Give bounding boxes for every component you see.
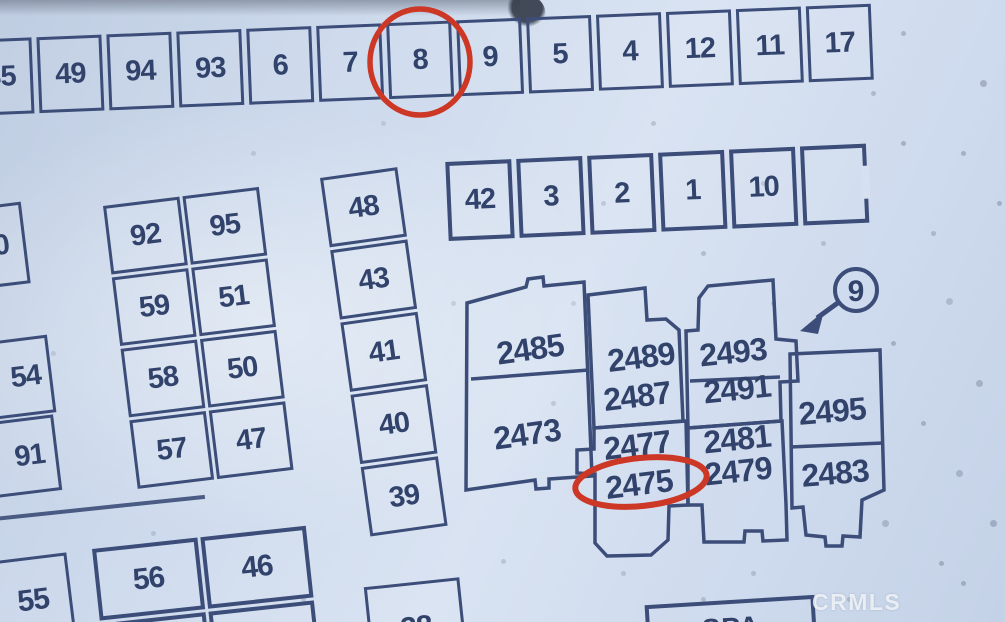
parking-space-48: 48 [320, 167, 407, 247]
paper-speckles [0, 0, 3, 3]
arrow-icon [817, 302, 839, 318]
top-parking-row: 35 49 94 93 6 7 8 9 5 4 12 11 17 [0, 4, 874, 116]
second-parking-row: 42 3 2 1 10 [445, 144, 869, 241]
parking-space-51: 51 [191, 258, 276, 336]
parking-space-empty [800, 144, 869, 226]
left-parking-grid: 92 95 59 51 58 50 57 47 [103, 187, 294, 489]
parking-space-41: 41 [340, 312, 427, 392]
unit-2487-label: 2487 [601, 374, 672, 418]
parking-space-17: 17 [806, 4, 874, 83]
direction-marker: 9 [800, 269, 877, 334]
parking-space-58: 58 [121, 340, 206, 418]
parking-space-2: 2 [587, 153, 656, 235]
parking-space-55: 55 [0, 552, 77, 622]
parking-space-49: 49 [36, 35, 104, 114]
parking-space-59: 59 [112, 268, 197, 346]
parking-space-93: 93 [176, 29, 244, 108]
unit-2491-label: 2491 [702, 368, 773, 411]
parking-space-43: 43 [330, 239, 417, 319]
building-2485-2473-outline [466, 277, 592, 490]
parking-space-95: 95 [182, 187, 267, 265]
unit-2483-label: 2483 [800, 452, 870, 494]
unit-2473-label: 2473 [491, 411, 563, 456]
parking-space-94: 94 [106, 32, 174, 111]
parking-space-56: 56 [92, 538, 205, 621]
parking-space-57: 57 [129, 411, 214, 489]
unit-2479-label: 2479 [703, 450, 774, 493]
building-2485-2473-divider [471, 370, 589, 379]
unit-2477-label: 2477 [601, 423, 672, 467]
parking-space-35: 35 [0, 37, 34, 116]
parking-space-47: 47 [209, 401, 294, 479]
unit-2485-label: 2485 [494, 326, 566, 371]
parking-space-46: 46 [200, 526, 313, 609]
building-2495-2483-divider [790, 443, 883, 447]
arrow-head-icon [800, 311, 824, 334]
building-2493-2491-outline [686, 280, 798, 428]
spa-label: SPA [701, 610, 762, 622]
parking-space-4: 4 [596, 12, 664, 91]
bottom-parking-grid: 56 46 [92, 526, 320, 622]
spa-box: SPA [645, 595, 818, 622]
parking-space-39: 39 [361, 456, 448, 536]
unit-2489-label: 2489 [605, 335, 676, 379]
parking-space-10: 10 [729, 147, 798, 229]
border-gap [861, 166, 870, 199]
stray-line [0, 495, 205, 521]
parking-space-11: 11 [736, 7, 804, 86]
crmls-watermark: CRMLS [812, 589, 901, 616]
site-map-photo: 35 49 94 93 6 7 8 9 5 4 12 11 17 42 3 2 … [0, 0, 1005, 622]
direction-marker-circle [835, 269, 877, 311]
building-2477-2475-outline [577, 421, 688, 556]
building-2481-2479-outline [688, 421, 787, 542]
parking-space-6: 6 [246, 26, 314, 105]
vertical-parking-column: 48 43 41 40 39 [320, 167, 448, 536]
unit-2493-label: 2493 [698, 331, 769, 374]
unit-labels: 2485 2473 2489 2487 2477 2475 2493 2491 … [491, 326, 870, 505]
parking-space-partial-0: 0 [0, 202, 31, 293]
parking-space-1: 1 [658, 150, 727, 232]
parking-space-42: 42 [445, 159, 514, 241]
parking-space-38-partial: 38 [364, 577, 468, 622]
parking-space-3: 3 [516, 156, 585, 238]
unit-2481-label: 2481 [702, 418, 773, 461]
parking-space-92: 92 [103, 197, 188, 275]
parking-space-40: 40 [350, 384, 437, 464]
building-2495-2483-outline [790, 350, 884, 546]
parking-space-50: 50 [200, 330, 285, 408]
parking-space-54: 54 [0, 335, 56, 424]
parking-space-91: 91 [0, 414, 62, 501]
parking-space-5: 5 [526, 15, 594, 94]
parking-space-8: 8 [386, 21, 454, 100]
building-2493-2491-divider [690, 377, 780, 381]
parking-space-12: 12 [666, 9, 734, 88]
parking-space-7: 7 [316, 23, 384, 102]
photo-top-edge [0, 0, 520, 16]
direction-marker-label: 9 [848, 275, 865, 308]
unit-2475-label: 2475 [603, 462, 674, 506]
building-2489-2487-outline [588, 288, 683, 428]
unit-2495-label: 2495 [797, 390, 867, 432]
parking-space-9: 9 [456, 18, 524, 97]
highlight-oval-unit-2475 [573, 451, 709, 513]
